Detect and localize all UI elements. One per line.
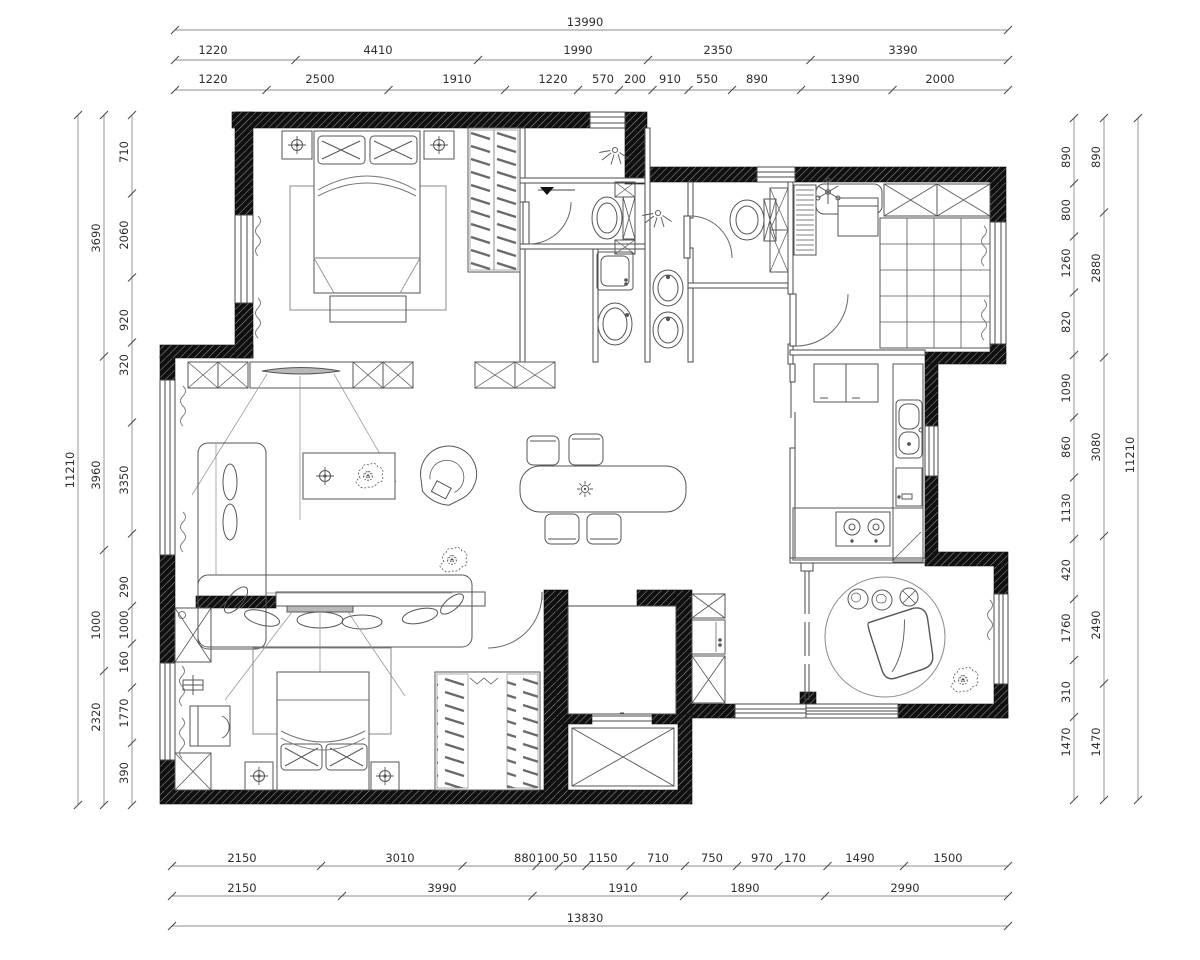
- dimension-label: 1760: [1059, 613, 1073, 642]
- bedroom-2: [175, 592, 540, 790]
- upper-cabinet: [846, 364, 878, 402]
- dining-table: [520, 466, 686, 512]
- shoe-cabinet: [692, 656, 725, 703]
- coffee-table: [303, 453, 395, 499]
- basin-icon: [653, 270, 683, 306]
- dimension-label: 750: [701, 851, 723, 865]
- dimension-label: 3690: [89, 223, 103, 252]
- curtain: [180, 666, 185, 706]
- window-master-left: [235, 215, 253, 303]
- curtain: [180, 718, 185, 758]
- dimension-label: 3080: [1089, 432, 1103, 461]
- dimension-label: 2350: [703, 43, 732, 57]
- wall-lamp: [183, 675, 203, 695]
- dimension-label: 970: [751, 851, 773, 865]
- curtain: [181, 386, 186, 426]
- nightstand: [424, 131, 454, 159]
- dimension-label: 1130: [1059, 493, 1073, 522]
- bed-bench: [330, 296, 406, 322]
- dimension-label: 1770: [117, 698, 131, 727]
- kitchen-sliding-door: [791, 382, 795, 448]
- kitchen: [793, 364, 923, 562]
- dimension-label: 2490: [1089, 610, 1103, 639]
- cabinet: [175, 753, 211, 790]
- window-tatami-right: [990, 222, 1006, 344]
- dimension-label: 3960: [89, 460, 103, 489]
- nightstand: [245, 762, 273, 790]
- dimension-label: 1000: [117, 610, 131, 639]
- dimension-label: 390: [117, 762, 131, 784]
- dimension-label: 1260: [1059, 248, 1073, 277]
- kitchen-sink-icon: [896, 400, 923, 458]
- dimension-label: 910: [659, 72, 681, 86]
- counter-cabinet: [896, 468, 922, 506]
- basin-icon: [653, 312, 683, 348]
- dimension-label: 4410: [363, 43, 392, 57]
- dimension-label: 1220: [198, 72, 227, 86]
- dimension-label: 1150: [588, 851, 617, 865]
- dining-chair: [545, 514, 579, 544]
- dimension-label: 1220: [198, 43, 227, 57]
- dimension-label: 2990: [890, 881, 919, 895]
- laundry-sink-icon: [598, 303, 632, 345]
- dimension-label: 1390: [830, 72, 859, 86]
- bed-icon: [314, 131, 420, 293]
- dimension-label: 2060: [117, 220, 131, 249]
- window-bedroom2-left: [160, 663, 175, 760]
- dimension-label: 13830: [567, 911, 604, 925]
- dimension-label: 800: [1059, 199, 1073, 221]
- elevator-icon: [572, 728, 674, 786]
- cabinet: [884, 184, 937, 216]
- dimension-label: 13990: [567, 15, 604, 29]
- dimension-label: 11210: [1123, 437, 1137, 474]
- dimension-label: 1000: [89, 610, 103, 639]
- dimension-label: 3350: [117, 465, 131, 494]
- dimension-label: 2000: [925, 72, 954, 86]
- tatami-grid: [880, 218, 990, 348]
- cabinet: [937, 184, 990, 216]
- stool: [900, 588, 918, 606]
- bedroom2-door: [488, 592, 542, 648]
- window-corridor-top: [757, 167, 795, 182]
- shower-icon: [599, 147, 628, 164]
- dimension-label: 1910: [442, 72, 471, 86]
- nightstand: [371, 762, 399, 790]
- dimension-label: 310: [1059, 681, 1073, 703]
- plant-icon: [951, 667, 978, 692]
- dimension-label: 820: [1059, 311, 1073, 333]
- dimension-label: 1910: [608, 881, 637, 895]
- shoe-cabinet: [692, 594, 725, 618]
- curtain: [181, 512, 186, 552]
- wardrobe-icon: [435, 672, 540, 790]
- dimension-label: 1990: [563, 43, 592, 57]
- dimension-label: 160: [117, 651, 131, 673]
- balcony: [825, 577, 993, 697]
- window-balcony-right: [994, 594, 1008, 684]
- dimension-label: 3390: [888, 43, 917, 57]
- dimension-label: 1890: [730, 881, 759, 895]
- floor-plan-page: 1399012204410199023503390122025001910122…: [0, 0, 1200, 960]
- dimension-label: 1470: [1059, 727, 1073, 756]
- entry-counter: [692, 620, 725, 654]
- dimension-label: 11210: [63, 452, 77, 489]
- dimension-label: 3990: [427, 881, 456, 895]
- dimension-label: 890: [1089, 146, 1103, 168]
- dining-chair: [587, 514, 621, 544]
- plant-icon: [440, 547, 467, 572]
- wardrobe-icon: [468, 128, 520, 272]
- dimension-label: 860: [1059, 436, 1073, 458]
- curtain: [256, 216, 261, 256]
- window-living-left: [160, 380, 175, 555]
- dimension-label: 710: [117, 141, 131, 163]
- dimension-label: 890: [746, 72, 768, 86]
- doors: [488, 202, 848, 648]
- dining-area: [520, 434, 686, 544]
- tv-wall-cabinets: [188, 362, 555, 388]
- window-bath-top: [590, 112, 625, 128]
- cabinet: [770, 230, 788, 272]
- master-bath-door: [523, 202, 571, 244]
- nightstand: [282, 131, 312, 159]
- dimension-label: 2150: [227, 851, 256, 865]
- dimension-label: 2150: [227, 881, 256, 895]
- dimension-label: 1500: [933, 851, 962, 865]
- dimension-label: 100: [537, 851, 559, 865]
- dimension-label: 880: [514, 851, 536, 865]
- dining-chair: [569, 434, 603, 465]
- desk: [838, 198, 878, 236]
- window-kitchen-right: [925, 426, 938, 476]
- stool: [848, 589, 868, 609]
- armchair-icon: [409, 436, 486, 514]
- cabinet: [770, 188, 788, 230]
- curtain: [256, 298, 261, 338]
- dimension-label: 1470: [1089, 727, 1103, 756]
- entry-threshold: [735, 704, 806, 718]
- floor-drain-icon: [538, 187, 575, 195]
- dimension-label: 2320: [89, 702, 103, 731]
- dining-chair: [527, 436, 559, 465]
- balcony-glass-partition: [801, 563, 813, 700]
- dimension-label: 2500: [305, 72, 334, 86]
- toilet-icon: [592, 197, 635, 239]
- shelf-rack: [794, 185, 816, 255]
- dimension-label: 200: [624, 72, 646, 86]
- dimension-label: 710: [647, 851, 669, 865]
- round-rug: [825, 577, 945, 697]
- dimension-label: 3010: [385, 851, 414, 865]
- toilet-icon: [730, 199, 776, 241]
- window-balcony-bottom: [806, 704, 898, 718]
- dimension-label: 1490: [845, 851, 874, 865]
- curtain: [982, 226, 987, 266]
- tatami-door: [790, 294, 848, 346]
- cushion: [223, 464, 237, 500]
- hanging-chair-icon: [867, 605, 942, 681]
- dimension-label: 550: [696, 72, 718, 86]
- cabinet-row: [276, 592, 485, 606]
- dimension-label: 920: [117, 309, 131, 331]
- dimension-label: 1090: [1059, 373, 1073, 402]
- curtain: [988, 600, 993, 640]
- dimension-label: 1220: [538, 72, 567, 86]
- stove-icon: [836, 512, 890, 546]
- stool: [872, 590, 892, 610]
- dimension-label: 890: [1059, 146, 1073, 168]
- tatami-room: [794, 178, 990, 348]
- cabinet: [175, 608, 211, 662]
- dimension-label: 570: [592, 72, 614, 86]
- dimension-label: 320: [117, 354, 131, 376]
- curtain: [982, 300, 987, 340]
- corner-counter: [893, 532, 921, 560]
- counter: [893, 364, 923, 562]
- floor-plan-canvas: 1399012204410199023503390122025001910122…: [0, 0, 1200, 960]
- upper-cabinet: [814, 364, 846, 402]
- dimension-label: 170: [784, 851, 806, 865]
- desk: [190, 706, 230, 746]
- dimension-label: 290: [117, 576, 131, 598]
- dimension-label: 2880: [1089, 253, 1103, 282]
- washing-machine-icon: [597, 252, 633, 290]
- dimension-label: 50: [563, 851, 578, 865]
- master-bedroom: [256, 128, 521, 338]
- bed-icon: [277, 672, 369, 790]
- counter: [793, 508, 923, 560]
- dimension-label: 420: [1059, 559, 1073, 581]
